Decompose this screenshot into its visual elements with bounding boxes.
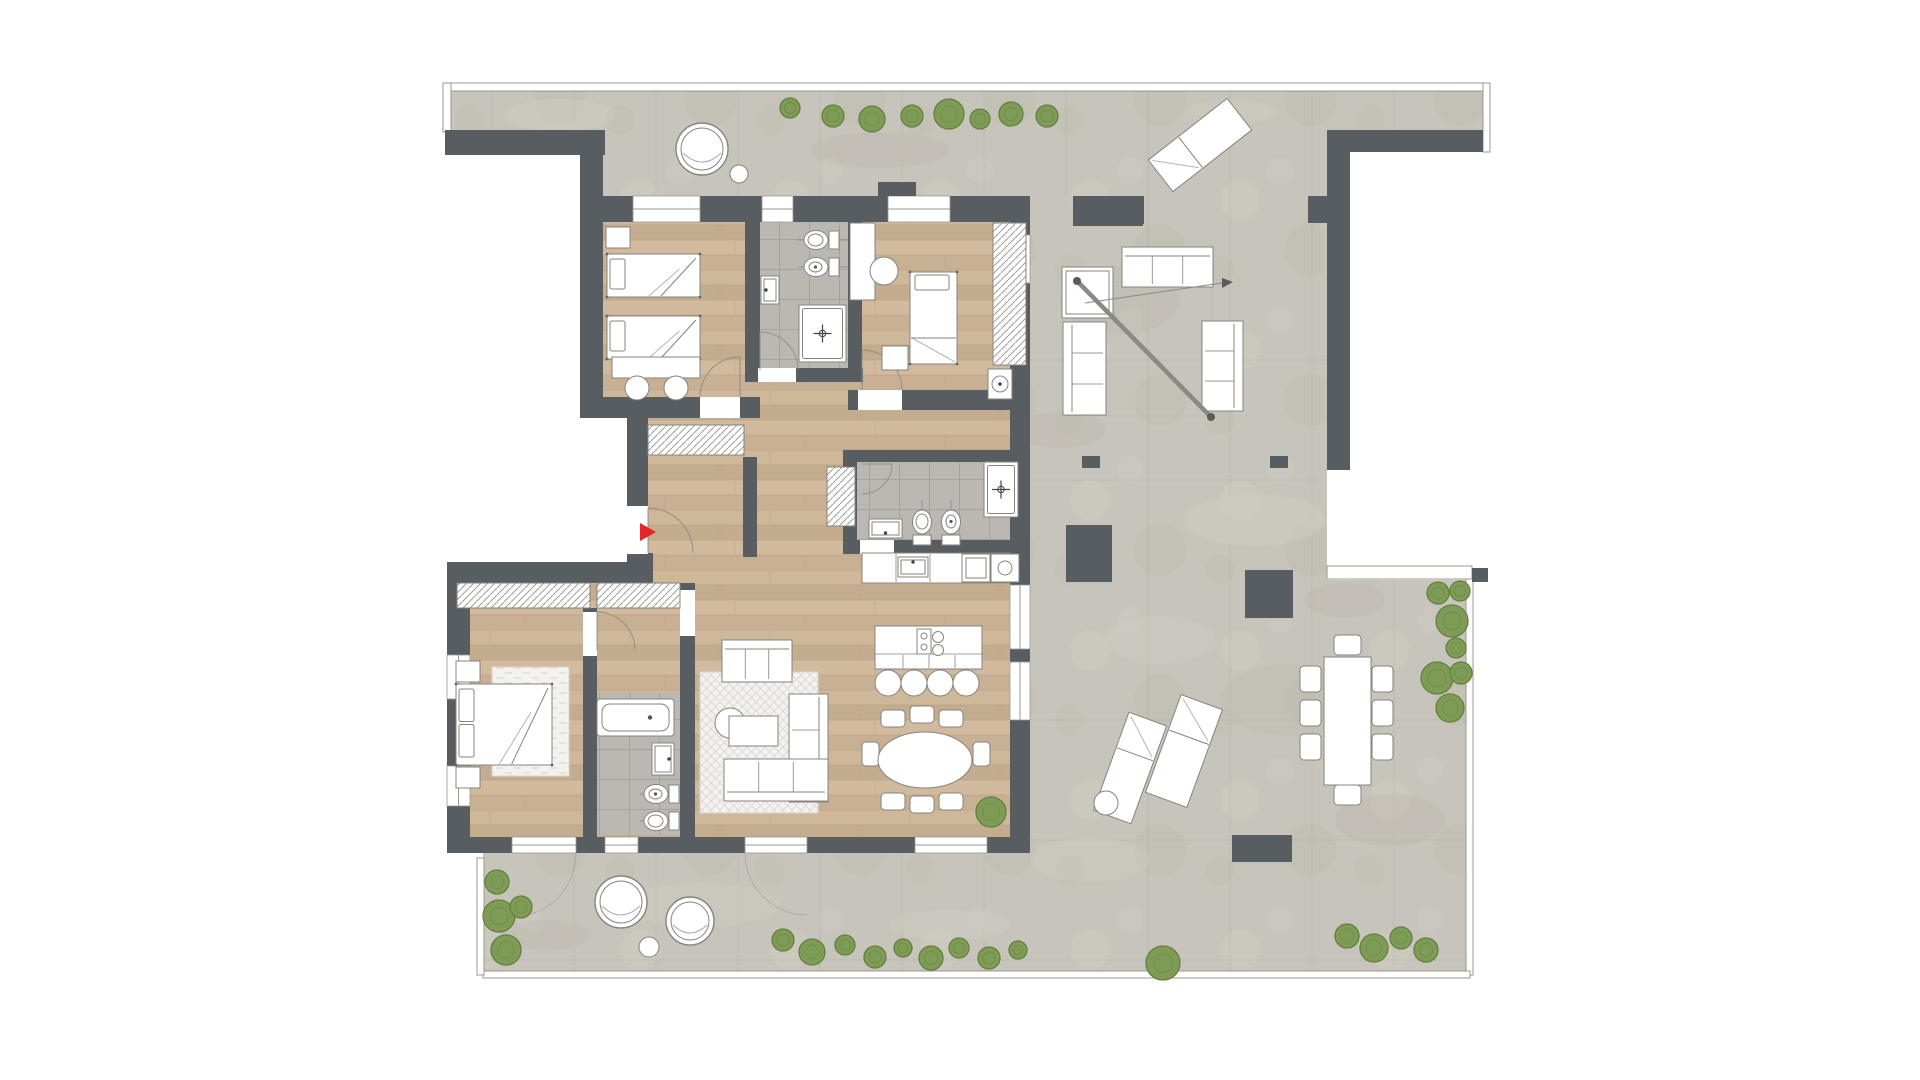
pillow <box>610 321 625 351</box>
tree <box>894 939 912 957</box>
tree <box>780 98 800 118</box>
planter <box>1128 196 1144 224</box>
bed-corner <box>455 683 458 686</box>
drum-dot <box>998 382 1002 386</box>
wall-bath1-west <box>745 222 760 382</box>
bed-corner <box>606 296 609 299</box>
railing-east-edge <box>1466 579 1473 975</box>
outdoor-chair <box>1300 700 1321 726</box>
outdoor-sofa-right <box>1202 321 1243 411</box>
dining-chair <box>910 796 934 813</box>
apartment-floor-plan <box>0 0 1920 1080</box>
planter <box>1270 456 1288 468</box>
dining-chair <box>973 742 990 766</box>
bidet-bath2 <box>942 510 961 545</box>
nightstand <box>882 346 908 370</box>
hanging-chair <box>676 123 728 175</box>
outdoor-chair <box>1300 666 1321 692</box>
tree <box>1009 941 1027 959</box>
wall-bath2-north <box>843 450 1025 462</box>
concrete-stain <box>890 909 1010 941</box>
tree <box>970 109 990 129</box>
tree <box>1427 582 1449 604</box>
concrete-stain <box>1030 838 1150 882</box>
planter <box>1232 835 1292 862</box>
planter <box>1066 525 1112 582</box>
parasol-base <box>1073 277 1081 285</box>
faucet <box>667 757 670 760</box>
tree <box>799 939 825 965</box>
tree <box>485 870 509 894</box>
planter <box>1472 568 1488 582</box>
drain <box>648 715 652 719</box>
railing-top-left <box>443 83 451 132</box>
pillow <box>915 275 949 290</box>
door-gap-bed1 <box>700 397 740 418</box>
door-gap-bed2 <box>858 390 902 410</box>
dining-chair <box>939 793 963 810</box>
cistern <box>829 258 839 276</box>
coffee-table <box>729 716 778 746</box>
outdoor-sofa-top <box>1122 247 1213 287</box>
nightstand <box>456 767 480 788</box>
tree <box>772 929 794 951</box>
wall-neighbor-top <box>1327 130 1483 152</box>
bed-corner <box>909 363 912 366</box>
tree <box>1436 605 1468 637</box>
planter <box>1245 570 1293 618</box>
nightstand <box>456 661 480 682</box>
cistern <box>913 535 931 545</box>
door-gap-ensuite <box>583 612 597 656</box>
outdoor-chair <box>1334 635 1361 655</box>
tree <box>999 102 1023 126</box>
pillow <box>459 689 474 722</box>
planter <box>1308 196 1327 223</box>
bed-corner <box>699 315 702 318</box>
dining-table <box>878 732 972 788</box>
concrete-stain <box>1185 494 1325 546</box>
cistern <box>669 785 679 803</box>
side-table-round <box>1094 791 1118 815</box>
tree <box>864 946 886 968</box>
tree <box>919 946 943 970</box>
dining-chair <box>910 706 934 723</box>
bed-corner <box>551 764 554 767</box>
tree <box>1414 938 1438 962</box>
tree <box>1390 927 1412 949</box>
bed-corner <box>606 315 609 318</box>
tree <box>934 99 964 129</box>
tree <box>1421 662 1453 694</box>
wall-neighbor-right <box>1327 130 1350 470</box>
outdoor-chair <box>1372 666 1393 692</box>
tree <box>1446 638 1466 658</box>
wardrobe-bath2 <box>827 467 855 526</box>
side-table-round <box>639 937 659 957</box>
nightstand <box>606 227 630 248</box>
desk-bed1 <box>612 357 700 378</box>
planter <box>878 182 916 196</box>
parasol-base <box>1207 413 1215 421</box>
dining-chair <box>881 793 905 810</box>
cistern <box>669 812 679 830</box>
bed-corner <box>606 358 609 361</box>
concrete-stain <box>810 132 950 168</box>
sofa-top <box>722 640 792 682</box>
wall-master-north <box>447 562 653 583</box>
toilet-bath1 <box>804 231 839 250</box>
indoor-plant <box>976 797 1006 827</box>
tap <box>654 792 657 795</box>
tree <box>1335 924 1359 948</box>
hanging-chair <box>595 876 647 928</box>
dining-chair <box>881 710 905 727</box>
concrete-stain <box>1305 582 1385 618</box>
dining-chair <box>862 742 879 766</box>
tree <box>901 105 923 127</box>
tree <box>978 947 1000 969</box>
desk-stool <box>664 376 688 400</box>
door-gap-bath2 <box>860 540 894 554</box>
wall-entry-west <box>627 418 648 506</box>
desk-bed2 <box>850 223 875 300</box>
side-table-round <box>730 165 748 183</box>
faucet <box>764 288 767 291</box>
tree <box>1036 105 1058 127</box>
concrete-stain <box>505 99 615 131</box>
outdoor-sofa-left <box>1063 322 1106 415</box>
bed-corner <box>956 271 959 274</box>
pillow <box>610 259 625 289</box>
tree <box>835 935 855 955</box>
desk-stool <box>625 376 649 400</box>
faucet <box>911 560 914 563</box>
floor-plan-page <box>0 0 1920 1080</box>
planter <box>1082 456 1100 468</box>
bidet-ensuite <box>644 785 679 804</box>
desk-chair <box>870 257 898 285</box>
outdoor-chair <box>1372 700 1393 726</box>
bar-stool <box>953 670 979 696</box>
outdoor-chair <box>1334 785 1361 805</box>
tree <box>949 938 969 958</box>
wardrobe-master-1 <box>457 583 590 608</box>
bar-stool <box>901 670 927 696</box>
bed-corner <box>551 683 554 686</box>
railing-east-band <box>1327 566 1472 579</box>
cooktop-appliance <box>991 554 1019 582</box>
pillow <box>459 725 474 758</box>
concrete-stain <box>1105 616 1215 664</box>
sofa-bottom <box>724 759 828 801</box>
faucet <box>884 531 887 534</box>
bed-corner <box>699 253 702 256</box>
door-gap-bath1 <box>758 368 796 382</box>
bed-corner <box>909 271 912 274</box>
cistern <box>829 231 839 249</box>
island-basin <box>933 645 944 656</box>
tree <box>1436 694 1464 722</box>
bed-corner <box>606 253 609 256</box>
tap <box>814 265 817 268</box>
bed-corner <box>699 296 702 299</box>
railing-top <box>443 83 1489 91</box>
wall-corridor-east <box>743 457 757 557</box>
cistern <box>942 535 960 545</box>
railing-bottom <box>483 971 1470 978</box>
bar-stool <box>875 670 901 696</box>
wall-top-left <box>445 130 605 155</box>
bidet-bath1 <box>804 258 839 277</box>
tree <box>822 105 844 127</box>
tree <box>510 896 532 918</box>
wardrobe-bed2 <box>993 223 1026 365</box>
bed-corner <box>455 764 458 767</box>
outdoor-chair <box>1300 734 1321 760</box>
hanging-chair <box>666 897 714 945</box>
door-gap-living <box>680 590 695 636</box>
tree <box>1450 662 1472 684</box>
outdoor-chair <box>1372 734 1393 760</box>
bar-stool <box>927 670 953 696</box>
tree <box>1450 581 1470 601</box>
railing-top-right <box>1483 83 1490 152</box>
tap <box>949 520 952 523</box>
toilet-ensuite <box>644 812 679 831</box>
terrace-slab-southeast <box>1030 580 1470 975</box>
tree <box>1360 934 1388 962</box>
tree <box>491 935 521 965</box>
dining-chair <box>939 710 963 727</box>
wardrobe-corridor <box>648 425 744 455</box>
outdoor-dining-table <box>1324 657 1371 785</box>
tree <box>859 106 885 132</box>
island-basin <box>933 632 944 643</box>
tree <box>1146 946 1180 980</box>
wall-west-wing <box>580 152 603 418</box>
toilet-bath2 <box>913 510 932 545</box>
bed-corner <box>956 363 959 366</box>
wardrobe-master-2 <box>597 583 680 608</box>
